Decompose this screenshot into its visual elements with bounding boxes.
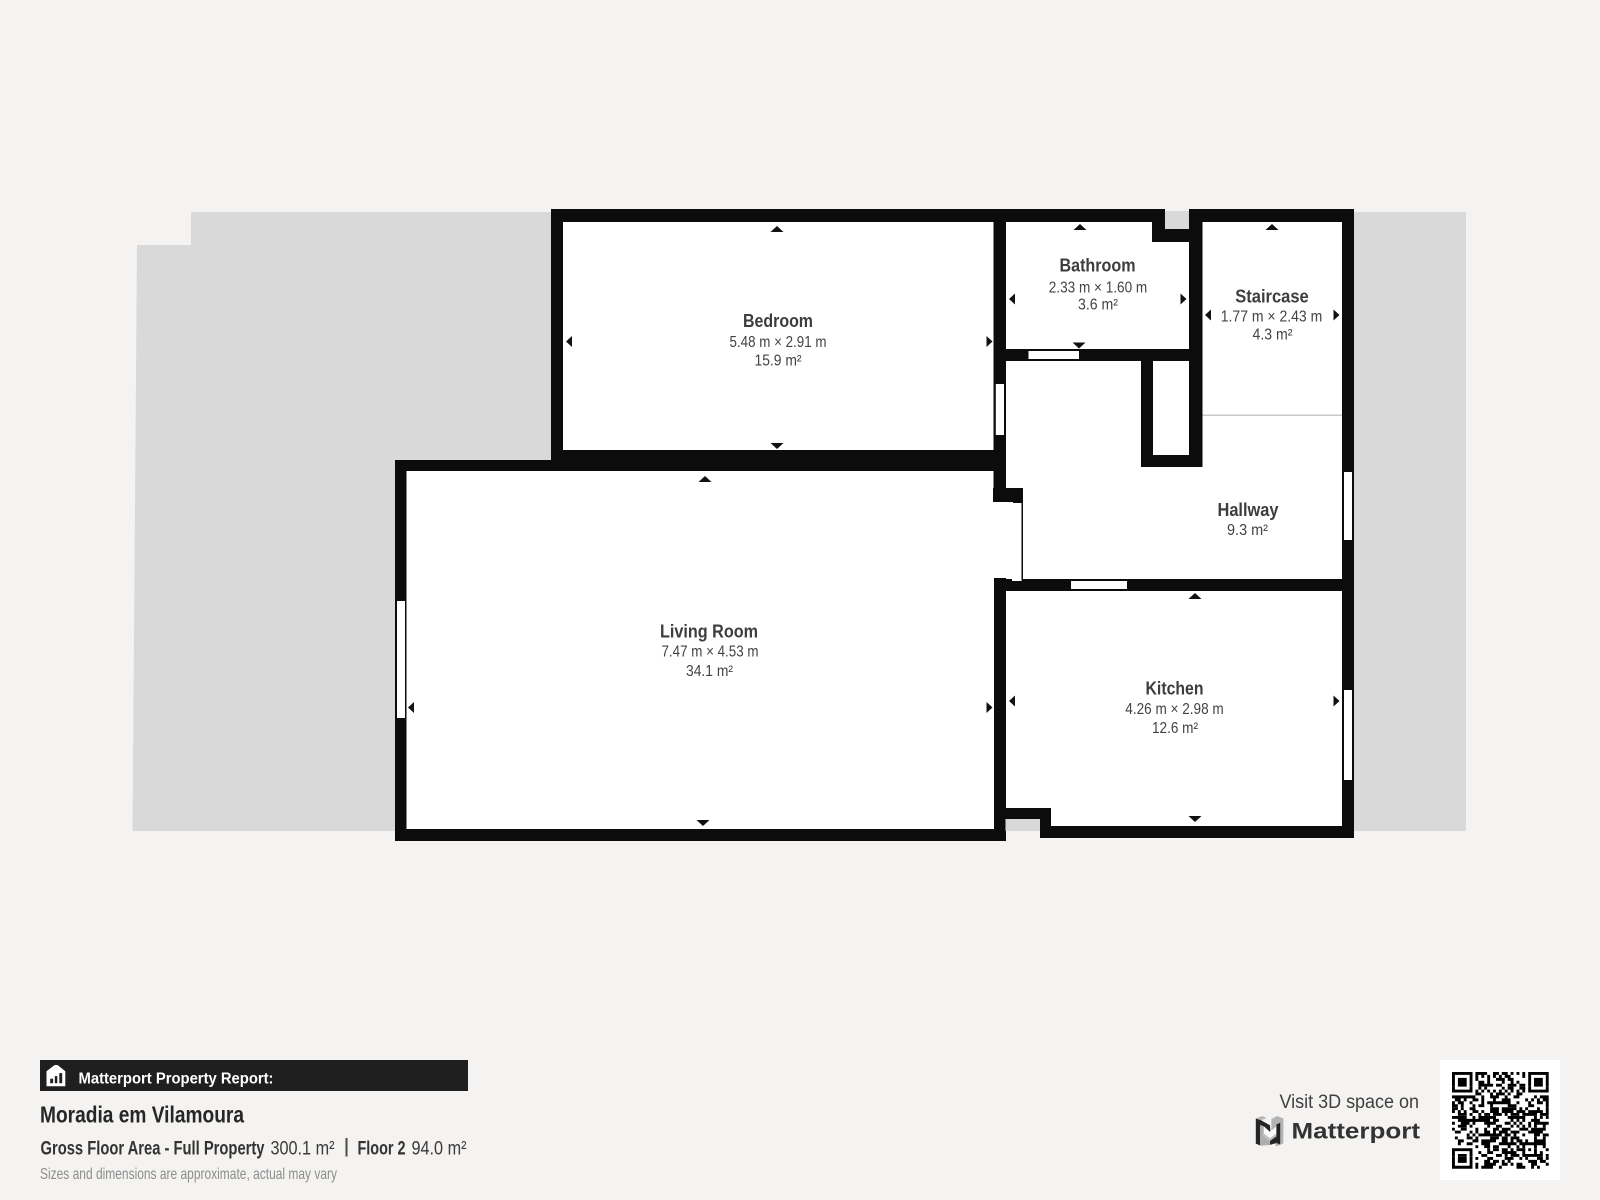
svg-text:Moradia em Vilamoura: Moradia em Vilamoura xyxy=(40,1102,244,1128)
svg-text:15.9 m²: 15.9 m² xyxy=(755,353,802,370)
svg-text:Kitchen: Kitchen xyxy=(1146,679,1204,699)
svg-text:Floor 2: Floor 2 xyxy=(358,1139,406,1160)
svg-text:Hallway: Hallway xyxy=(1218,500,1279,520)
svg-text:34.1 m²: 34.1 m² xyxy=(686,663,733,680)
svg-text:Staircase: Staircase xyxy=(1235,287,1309,307)
svg-text:1.77 m × 2.43 m: 1.77 m × 2.43 m xyxy=(1221,309,1323,326)
svg-text:Bedroom: Bedroom xyxy=(743,311,813,331)
svg-text:3.6 m²: 3.6 m² xyxy=(1078,297,1118,314)
svg-text:4.3 m²: 4.3 m² xyxy=(1253,327,1293,344)
svg-text:Living Room: Living Room xyxy=(660,622,758,642)
svg-text:4.26 m × 2.98 m: 4.26 m × 2.98 m xyxy=(1125,701,1223,718)
svg-text:Gross Floor Area - Full Proper: Gross Floor Area - Full Property xyxy=(41,1139,265,1160)
svg-text:300.1 m²: 300.1 m² xyxy=(271,1139,335,1160)
svg-text:Matterport: Matterport xyxy=(1292,1119,1421,1144)
svg-text:2.33 m × 1.60 m: 2.33 m × 1.60 m xyxy=(1049,280,1148,297)
svg-text:Visit 3D space on: Visit 3D space on xyxy=(1280,1092,1420,1113)
svg-text:5.48 m × 2.91 m: 5.48 m × 2.91 m xyxy=(730,334,827,351)
svg-text:12.6 m²: 12.6 m² xyxy=(1152,720,1198,737)
svg-text:Sizes and dimensions are appro: Sizes and dimensions are approximate, ac… xyxy=(40,1166,337,1183)
svg-text:Bathroom: Bathroom xyxy=(1060,256,1136,276)
svg-text:9.3 m²: 9.3 m² xyxy=(1227,522,1268,539)
svg-text:Matterport Property Report:: Matterport Property Report: xyxy=(79,1071,274,1088)
svg-text:7.47 m × 4.53 m: 7.47 m × 4.53 m xyxy=(662,644,759,661)
svg-text:94.0 m²: 94.0 m² xyxy=(412,1139,467,1160)
